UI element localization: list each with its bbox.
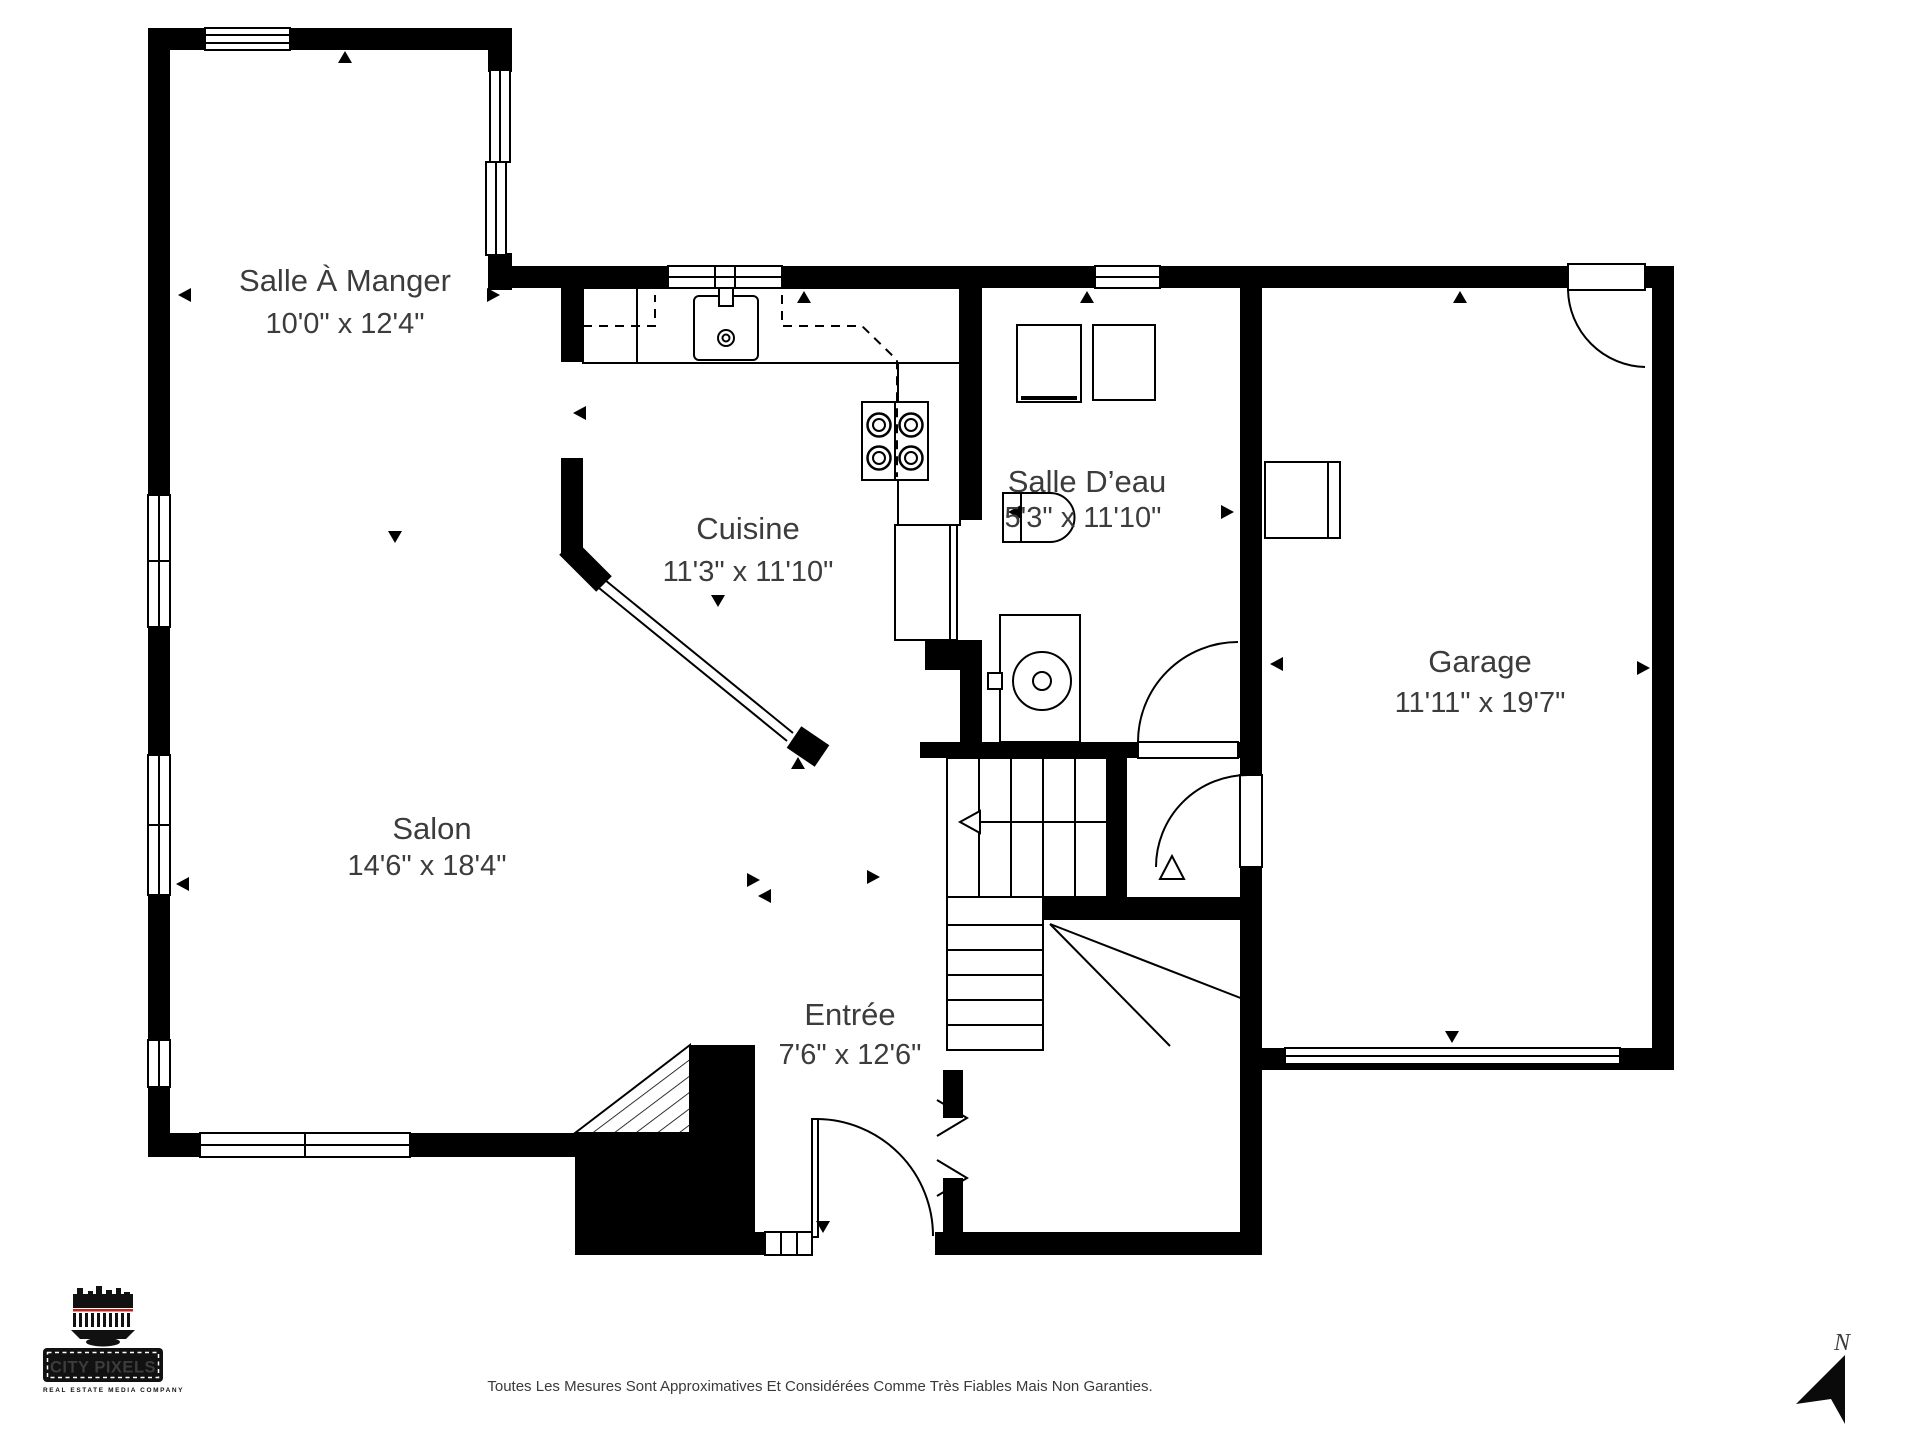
diagonal-half-wall <box>599 580 793 741</box>
logo-badge: CITY PIXELS <box>43 1348 163 1382</box>
window-left-2 <box>148 755 170 895</box>
kitchen-sink <box>694 288 758 360</box>
north-arrow-icon <box>1796 1355 1845 1424</box>
north-compass: N <box>1790 1322 1870 1432</box>
fridge <box>895 525 957 640</box>
window-dining-right-2 <box>486 162 506 255</box>
compass-n-label: N <box>1833 1330 1852 1356</box>
disclaimer-text: Toutes Les Mesures Sont Approximatives E… <box>0 1378 1640 1395</box>
window-salle-deau <box>1095 266 1160 288</box>
window-left-1 <box>148 495 170 627</box>
window-salon-bottom <box>200 1133 410 1157</box>
vanity-sink <box>988 615 1080 742</box>
logo-skyline-icon <box>71 1286 135 1347</box>
window-dining-right-1 <box>490 70 510 162</box>
label-salon-dims: 14'6" x 18'4" <box>347 850 506 882</box>
stove <box>862 402 928 480</box>
window-dining-top <box>205 28 290 50</box>
label-salon-name: Salon <box>392 811 471 846</box>
room-labels: Salle À Manger 10'0" x 12'4" Cuisine 11'… <box>239 263 1565 1071</box>
porch-steps <box>575 1045 690 1133</box>
dryer <box>1093 325 1155 400</box>
floorplan-drawing: Salle À Manger 10'0" x 12'4" Cuisine 11'… <box>0 0 1920 1440</box>
label-bath-dims: 5'3" x 11'10" <box>1005 502 1162 534</box>
floorplan-page: { "rooms": [ {"name": "Salle À Manger", … <box>0 0 1920 1440</box>
garage-side-door <box>1568 264 1645 367</box>
label-dining-name: Salle À Manger <box>239 263 451 298</box>
window-left-3 <box>148 1040 170 1087</box>
label-entry-dims: 7'6" x 12'6" <box>779 1039 922 1071</box>
label-dining-dims: 10'0" x 12'4" <box>265 308 424 340</box>
window-entry-sidelight <box>765 1232 812 1255</box>
salle-deau-door <box>1138 642 1238 758</box>
stairs-down <box>947 856 1256 1050</box>
upper-cabinets-dashed <box>583 295 897 477</box>
logo-title: CITY PIXELS <box>50 1359 156 1377</box>
garage-hall-door <box>1156 775 1262 867</box>
label-bath-name: Salle D’eau <box>1008 464 1167 499</box>
window-kitchen <box>668 266 782 288</box>
washer <box>1017 325 1081 402</box>
garage-door <box>1285 1048 1620 1064</box>
label-entry-name: Entrée <box>804 997 895 1032</box>
label-garage-dims: 11'11" x 19'7" <box>1395 687 1566 719</box>
stairs-up <box>947 758 1107 897</box>
water-heater <box>1265 462 1340 538</box>
label-kitchen-name: Cuisine <box>696 511 799 546</box>
label-kitchen-dims: 11'3" x 11'10" <box>663 556 834 588</box>
front-door <box>812 1119 933 1237</box>
label-garage-name: Garage <box>1428 644 1531 679</box>
